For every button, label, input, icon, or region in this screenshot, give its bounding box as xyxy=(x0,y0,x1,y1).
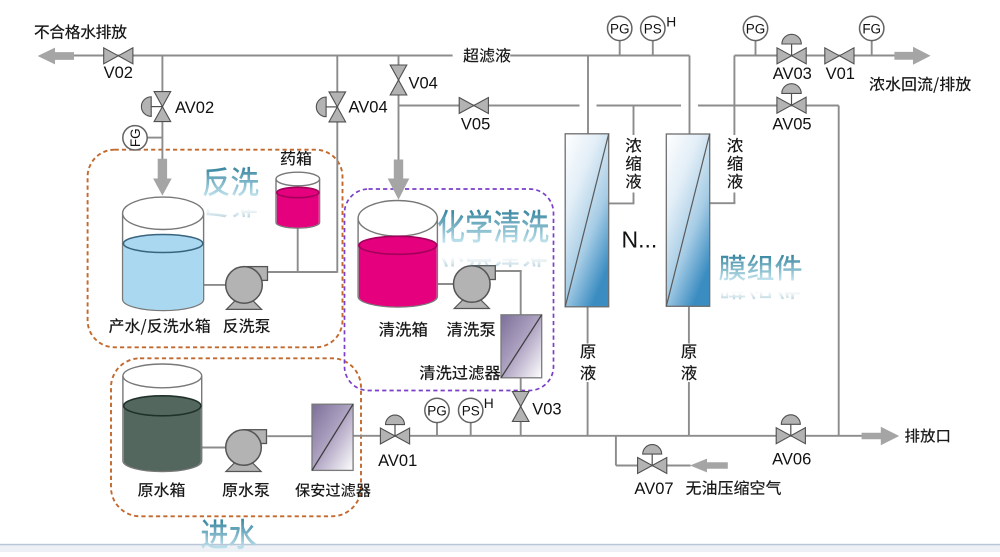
svg-text:AV04: AV04 xyxy=(349,99,388,117)
svg-text:PG: PG xyxy=(427,403,447,418)
svg-text:V02: V02 xyxy=(104,64,133,82)
svg-text:PS: PS xyxy=(644,21,662,36)
svg-text:PS: PS xyxy=(462,403,480,418)
svg-text:H: H xyxy=(484,396,494,411)
svg-text:N...: N... xyxy=(622,227,658,253)
svg-text:AV06: AV06 xyxy=(772,450,811,468)
svg-text:V05: V05 xyxy=(461,116,490,134)
svg-text:AV02: AV02 xyxy=(175,99,214,117)
svg-text:AV03: AV03 xyxy=(773,65,812,83)
svg-text:AV01: AV01 xyxy=(378,452,417,470)
svg-text:AV07: AV07 xyxy=(634,480,673,498)
svg-text:FG: FG xyxy=(128,128,143,147)
svg-text:V04: V04 xyxy=(409,74,438,92)
svg-text:V01: V01 xyxy=(826,65,855,83)
svg-text:H: H xyxy=(666,15,676,30)
svg-text:PG: PG xyxy=(746,21,766,36)
svg-text:PG: PG xyxy=(610,21,630,36)
svg-text:AV05: AV05 xyxy=(772,116,811,134)
svg-text:FG: FG xyxy=(862,21,881,36)
svg-text:V03: V03 xyxy=(532,401,561,419)
